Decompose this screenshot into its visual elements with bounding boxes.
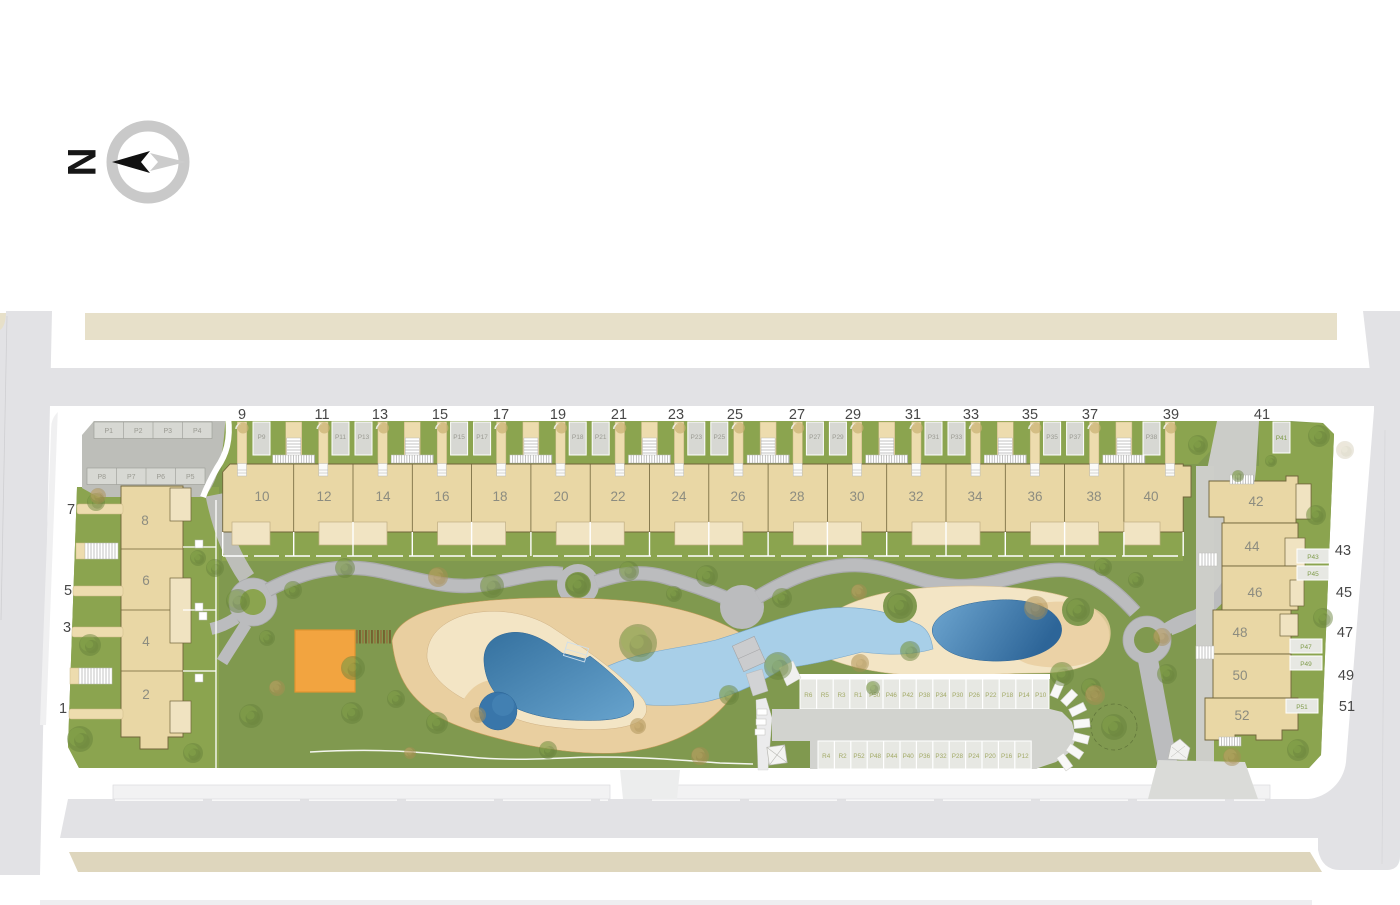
svg-text:31: 31 <box>905 407 921 423</box>
svg-text:10: 10 <box>254 489 269 504</box>
svg-text:P3: P3 <box>163 428 172 435</box>
svg-text:P14: P14 <box>1018 692 1030 699</box>
svg-text:37: 37 <box>1082 407 1098 423</box>
svg-text:P13: P13 <box>358 434 370 441</box>
svg-text:11: 11 <box>314 407 329 423</box>
svg-text:P22: P22 <box>985 692 997 699</box>
svg-text:P33: P33 <box>951 434 963 441</box>
svg-text:17: 17 <box>493 407 509 423</box>
svg-text:45: 45 <box>1336 585 1352 601</box>
svg-text:28: 28 <box>789 489 804 504</box>
svg-text:2: 2 <box>142 687 150 702</box>
svg-text:27: 27 <box>789 407 805 423</box>
svg-text:P42: P42 <box>902 692 914 699</box>
svg-text:P20: P20 <box>985 753 997 760</box>
svg-text:P2: P2 <box>134 428 143 435</box>
svg-text:P11: P11 <box>335 434 346 441</box>
svg-text:P29: P29 <box>832 434 844 441</box>
svg-text:8: 8 <box>141 513 149 528</box>
svg-text:39: 39 <box>1163 407 1179 423</box>
svg-text:P18: P18 <box>572 434 584 441</box>
svg-text:41: 41 <box>1254 407 1270 423</box>
svg-text:20: 20 <box>553 489 568 504</box>
svg-text:P32: P32 <box>935 753 947 760</box>
svg-text:24: 24 <box>671 489 687 504</box>
svg-text:34: 34 <box>967 489 983 504</box>
svg-text:P28: P28 <box>952 753 964 760</box>
svg-text:18: 18 <box>492 489 507 504</box>
svg-text:33: 33 <box>963 407 979 423</box>
svg-text:7: 7 <box>67 502 75 518</box>
svg-text:P26: P26 <box>969 692 981 699</box>
svg-text:46: 46 <box>1247 585 1262 600</box>
svg-text:P37: P37 <box>1069 434 1081 441</box>
svg-text:42: 42 <box>1248 494 1263 509</box>
svg-text:43: 43 <box>1335 543 1351 559</box>
svg-text:13: 13 <box>372 407 388 423</box>
svg-text:21: 21 <box>611 407 627 423</box>
svg-text:1: 1 <box>59 701 67 717</box>
svg-text:47: 47 <box>1337 625 1353 641</box>
svg-text:P17: P17 <box>476 434 488 441</box>
svg-text:22: 22 <box>610 489 625 504</box>
svg-text:52: 52 <box>1234 708 1249 723</box>
svg-text:4: 4 <box>142 634 150 649</box>
svg-text:R1: R1 <box>854 692 863 699</box>
svg-text:12: 12 <box>316 489 331 504</box>
svg-text:R4: R4 <box>822 753 831 760</box>
svg-text:14: 14 <box>375 489 391 504</box>
svg-text:P49: P49 <box>1300 661 1312 668</box>
svg-text:25: 25 <box>727 407 743 423</box>
svg-text:35: 35 <box>1022 407 1038 423</box>
svg-text:38: 38 <box>1086 489 1101 504</box>
svg-text:30: 30 <box>849 489 864 504</box>
svg-text:P41: P41 <box>1276 435 1288 442</box>
svg-text:50: 50 <box>1232 668 1247 683</box>
svg-text:9: 9 <box>238 407 246 423</box>
svg-text:P40: P40 <box>903 753 915 760</box>
svg-text:23: 23 <box>668 407 684 423</box>
svg-text:P24: P24 <box>968 753 980 760</box>
svg-text:P10: P10 <box>1035 692 1047 699</box>
svg-text:P31: P31 <box>928 434 940 441</box>
svg-text:P21: P21 <box>595 434 607 441</box>
svg-text:P8: P8 <box>97 474 106 481</box>
svg-text:P45: P45 <box>1307 571 1319 578</box>
svg-text:R3: R3 <box>837 692 846 699</box>
svg-text:26: 26 <box>730 489 745 504</box>
svg-text:R6: R6 <box>804 692 813 699</box>
svg-text:P15: P15 <box>453 434 465 441</box>
svg-text:P1: P1 <box>104 428 113 435</box>
svg-text:P46: P46 <box>886 692 898 699</box>
svg-text:N: N <box>59 148 103 177</box>
svg-text:16: 16 <box>434 489 449 504</box>
svg-text:P52: P52 <box>853 753 865 760</box>
svg-text:P27: P27 <box>809 434 821 441</box>
svg-text:51: 51 <box>1339 699 1355 715</box>
svg-text:P4: P4 <box>193 428 202 435</box>
svg-text:P47: P47 <box>1300 644 1312 651</box>
svg-text:44: 44 <box>1244 539 1260 554</box>
svg-text:5: 5 <box>64 583 72 599</box>
svg-text:P38: P38 <box>1146 434 1158 441</box>
svg-text:P23: P23 <box>691 434 703 441</box>
svg-text:P30: P30 <box>952 692 964 699</box>
svg-text:P35: P35 <box>1046 434 1058 441</box>
svg-text:P44: P44 <box>886 753 898 760</box>
svg-text:P34: P34 <box>935 692 947 699</box>
svg-text:P5: P5 <box>186 474 195 481</box>
svg-text:P38: P38 <box>919 692 931 699</box>
svg-text:3: 3 <box>63 620 71 636</box>
svg-text:P36: P36 <box>919 753 931 760</box>
svg-text:36: 36 <box>1027 489 1042 504</box>
svg-text:P43: P43 <box>1307 554 1319 561</box>
svg-text:32: 32 <box>908 489 923 504</box>
svg-text:P18: P18 <box>1002 692 1014 699</box>
svg-text:P25: P25 <box>714 434 726 441</box>
svg-text:48: 48 <box>1232 625 1247 640</box>
svg-text:P16: P16 <box>1001 753 1013 760</box>
svg-text:15: 15 <box>432 407 448 423</box>
svg-text:P7: P7 <box>127 474 136 481</box>
svg-text:19: 19 <box>550 407 566 423</box>
svg-text:40: 40 <box>1143 489 1158 504</box>
svg-text:P12: P12 <box>1017 753 1029 760</box>
svg-text:P6: P6 <box>156 474 165 481</box>
svg-text:P9: P9 <box>258 434 266 441</box>
svg-text:6: 6 <box>142 573 150 588</box>
svg-text:R2: R2 <box>839 753 848 760</box>
svg-text:P51: P51 <box>1296 704 1308 711</box>
svg-text:R5: R5 <box>821 692 830 699</box>
svg-text:P48: P48 <box>870 753 882 760</box>
svg-text:29: 29 <box>845 407 861 423</box>
svg-text:49: 49 <box>1338 668 1354 684</box>
